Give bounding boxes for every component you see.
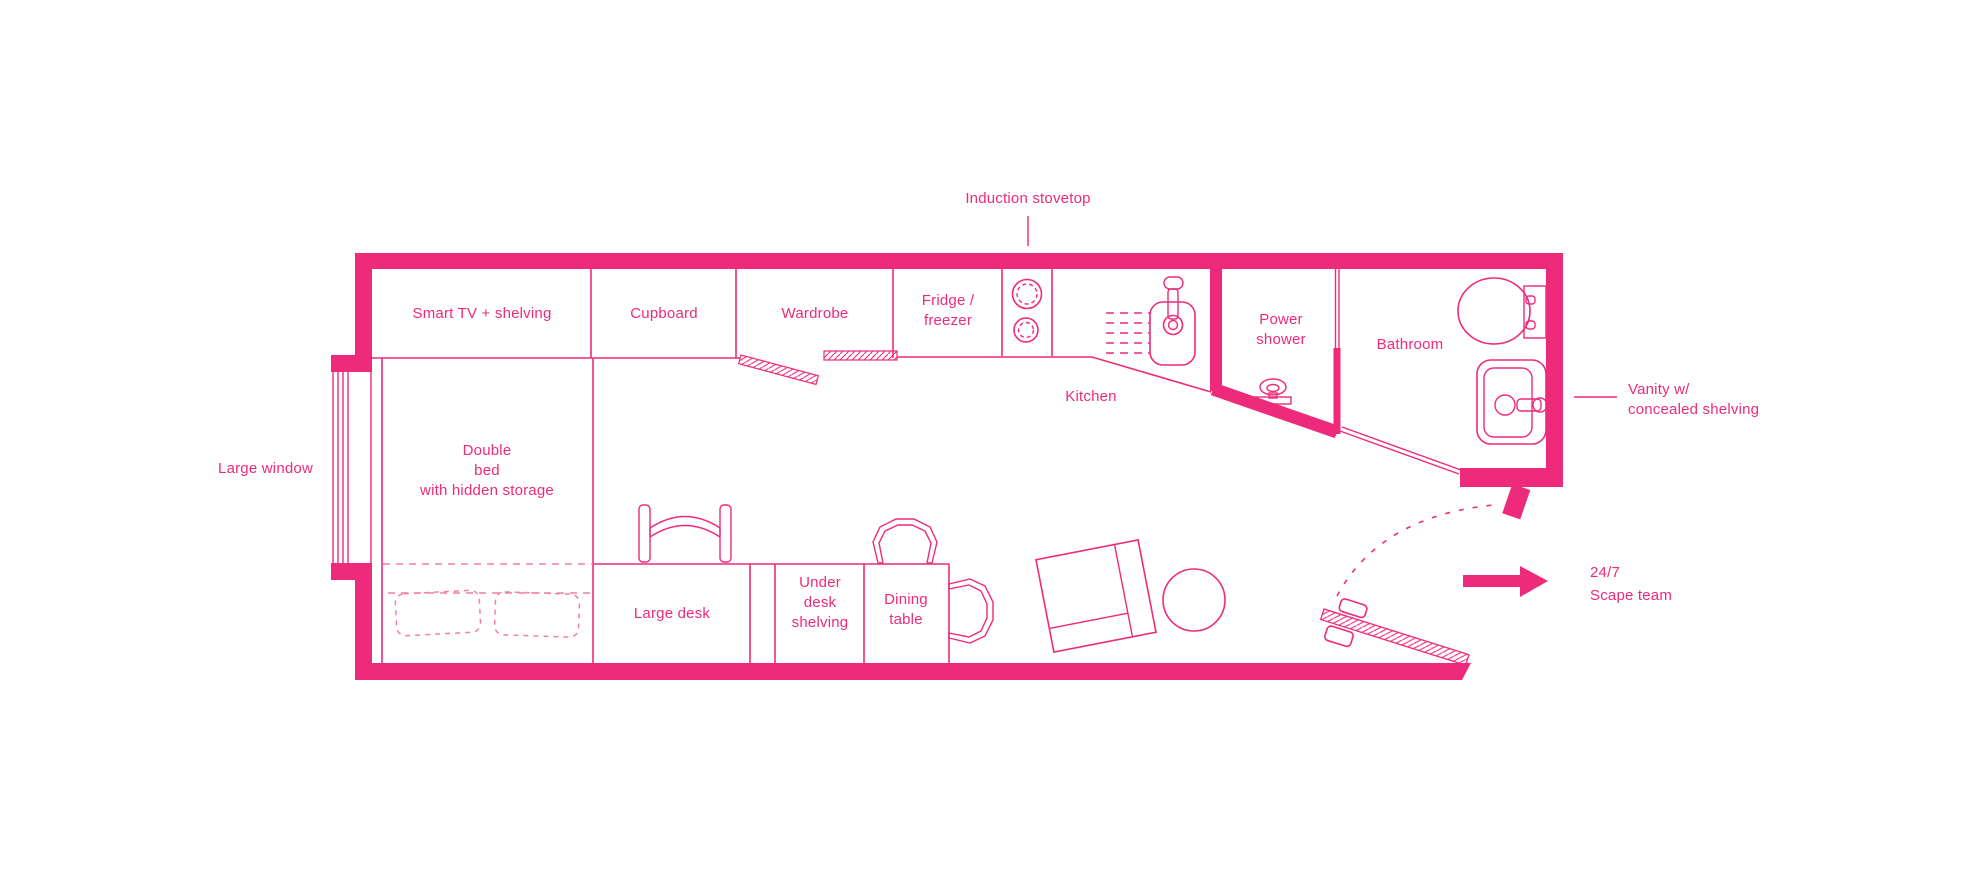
pillow bbox=[395, 590, 481, 636]
drainer-icon bbox=[1106, 313, 1150, 353]
label-bed-3: with hidden storage bbox=[419, 482, 554, 499]
floorplan-svg: Induction stovetop Smart TV + shelving C… bbox=[0, 0, 1980, 880]
floorplan-page: Induction stovetop Smart TV + shelving C… bbox=[0, 0, 1980, 880]
window-sill-top bbox=[331, 355, 372, 372]
wall-bathroom-bottom bbox=[1460, 468, 1563, 487]
wall-left-upper bbox=[355, 253, 372, 355]
wall-right bbox=[1546, 253, 1563, 487]
label-large-desk: Large desk bbox=[634, 605, 711, 622]
label-bed-1: Double bbox=[463, 442, 512, 459]
label-under-desk-2: desk bbox=[804, 594, 837, 611]
stovetop-icon bbox=[1002, 269, 1052, 356]
label-bed-2: bed bbox=[474, 462, 500, 479]
entry-arrow-icon bbox=[1463, 566, 1548, 597]
label-smart-tv: Smart TV + shelving bbox=[413, 305, 552, 322]
wall-shower-left bbox=[1210, 269, 1222, 391]
label-kitchen: Kitchen bbox=[1065, 388, 1116, 405]
wardrobe-door-sliding bbox=[824, 351, 897, 360]
large-window bbox=[333, 372, 371, 563]
label-scape-team-2: Scape team bbox=[1590, 587, 1672, 604]
vanity-basin-icon bbox=[1477, 360, 1547, 444]
label-under-desk-3: shelving bbox=[792, 614, 849, 631]
dining-chair bbox=[873, 519, 937, 563]
label-power-shower-2: shower bbox=[1256, 331, 1306, 348]
shower-bathroom-divider bbox=[1336, 269, 1340, 348]
armchair bbox=[1036, 540, 1156, 652]
desk-chair bbox=[639, 505, 731, 562]
label-large-window: Large window bbox=[218, 460, 313, 477]
label-fridge-2: freezer bbox=[924, 312, 972, 329]
side-table bbox=[1163, 569, 1225, 631]
label-fridge-1: Fridge / bbox=[922, 292, 975, 309]
label-dining-1: Dining bbox=[884, 591, 928, 608]
bathroom-door bbox=[1340, 427, 1461, 474]
toilet-icon bbox=[1458, 278, 1546, 344]
label-wardrobe: Wardrobe bbox=[782, 305, 849, 322]
wall-top bbox=[355, 253, 1563, 269]
entry-door-jamb bbox=[1502, 484, 1530, 519]
wall-bottom bbox=[355, 663, 1471, 680]
cabinet-row bbox=[372, 269, 1211, 392]
wardrobe-door-open bbox=[739, 355, 819, 384]
dining-chair bbox=[949, 579, 993, 643]
label-cupboard: Cupboard bbox=[630, 305, 697, 322]
window-sill-bottom bbox=[331, 563, 372, 580]
label-induction-stovetop: Induction stovetop bbox=[965, 190, 1090, 207]
label-vanity-1: Vanity w/ bbox=[1628, 381, 1690, 398]
label-power-shower-1: Power bbox=[1259, 311, 1303, 328]
label-under-desk-1: Under bbox=[799, 574, 841, 591]
label-dining-2: table bbox=[889, 611, 923, 628]
label-scape-team-1: 24/7 bbox=[1590, 564, 1620, 581]
label-bathroom: Bathroom bbox=[1377, 336, 1444, 353]
pillow bbox=[494, 592, 579, 638]
double-bed bbox=[382, 358, 593, 663]
kitchen-sink-icon bbox=[1150, 277, 1195, 365]
label-vanity-2: concealed shelving bbox=[1628, 401, 1759, 418]
